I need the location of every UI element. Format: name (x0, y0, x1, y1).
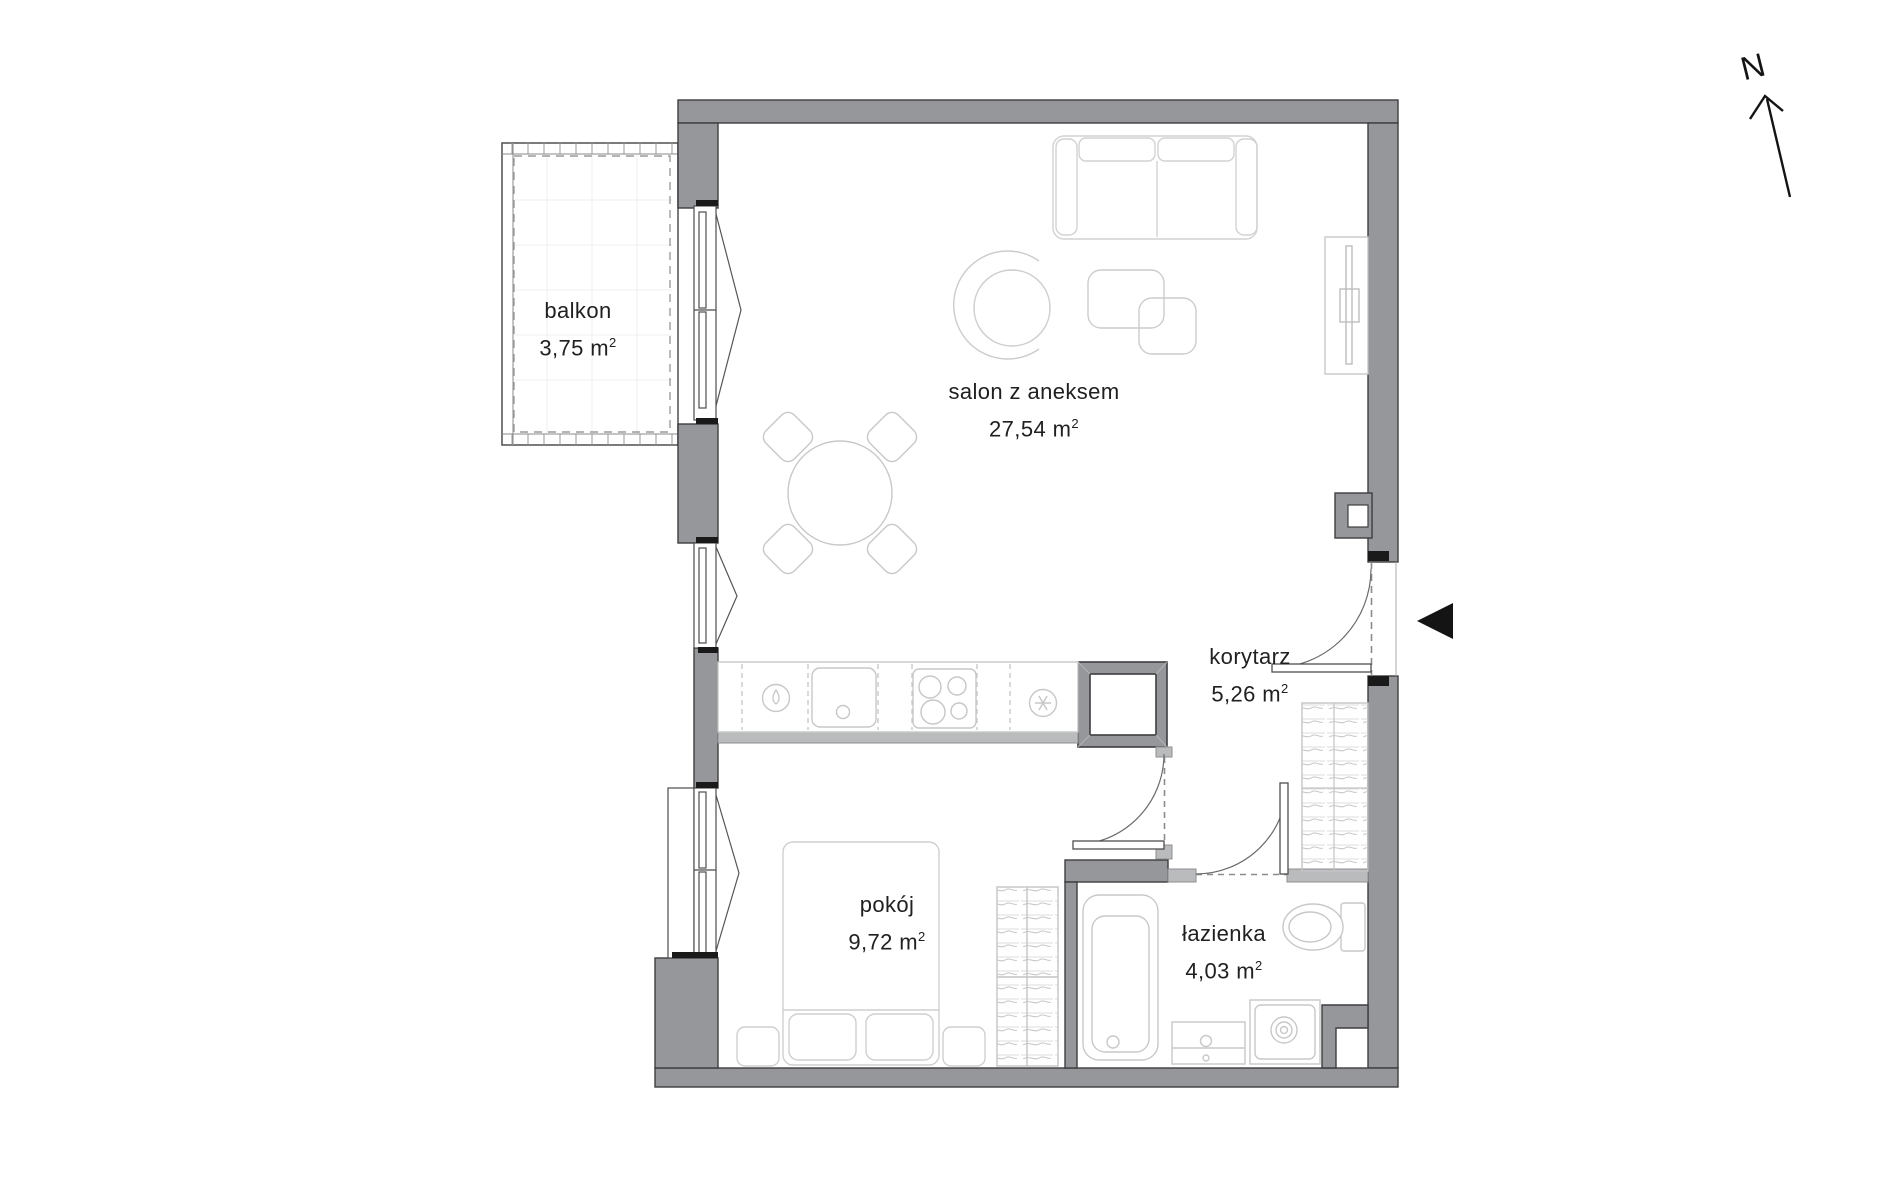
wall-left-c (694, 648, 718, 788)
bedroom-door (1073, 754, 1165, 849)
shaft (1078, 662, 1167, 747)
balcony (502, 143, 678, 445)
wall-right-lower (1368, 676, 1398, 1068)
wall-bathroom-left (1065, 882, 1077, 1068)
armchair (954, 251, 1050, 359)
room-area: 9,72 m2 (848, 921, 925, 958)
windows (668, 200, 741, 958)
entrance-marker-icon (1417, 603, 1453, 639)
room-name: korytarz (1209, 641, 1290, 673)
bathtub (1083, 895, 1158, 1060)
balcony-outline (502, 143, 678, 445)
room-label-balkon: balkon 3,75 m2 (539, 295, 616, 364)
balcony-door-window (694, 206, 741, 420)
wall-left-d (655, 958, 718, 1068)
hallway-wardrobe (1302, 703, 1368, 871)
kitchen-window (694, 543, 737, 648)
bedroom-window (668, 788, 739, 958)
dining-set (760, 409, 921, 578)
floor-plan-page: balkon 3,75 m2 salon z aneksem 27,54 m2 … (0, 0, 1900, 1189)
wall-bottom (655, 1068, 1398, 1087)
floor-plan-drawing (0, 0, 1900, 1189)
room-area: 5,26 m2 (1209, 673, 1290, 710)
coffee-tables (1088, 270, 1196, 354)
bathroom-door (1196, 783, 1288, 875)
nightstand-right (943, 1027, 985, 1066)
room-area: 3,75 m2 (539, 327, 616, 364)
balcony-railing-lines (502, 143, 678, 445)
room-name: salon z aneksem (948, 376, 1119, 408)
kitchen-counter (718, 662, 1078, 732)
sofa (1053, 136, 1257, 239)
room-name: pokój (848, 889, 925, 921)
room-name: balkon (539, 295, 616, 327)
washing-machine (1250, 1000, 1320, 1064)
wall-niche-inner (1348, 505, 1368, 527)
room-label-lazienka: łazienka 4,03 m2 (1182, 918, 1266, 987)
room-label-salon: salon z aneksem 27,54 m2 (948, 376, 1119, 445)
wall-left-b (678, 424, 718, 543)
room-area: 27,54 m2 (948, 408, 1119, 445)
bedroom-wardrobe (997, 887, 1058, 1066)
kitchen (718, 662, 1078, 732)
north-arrow-icon (1750, 96, 1790, 197)
tv-unit (1325, 237, 1368, 374)
room-name: łazienka (1182, 918, 1266, 950)
room-label-korytarz: korytarz 5,26 m2 (1209, 641, 1290, 710)
toilet (1283, 903, 1365, 951)
wall-top (678, 100, 1398, 123)
living-room-furniture (760, 136, 1368, 577)
room-label-pokoj: pokój 9,72 m2 (848, 889, 925, 958)
wall-bathroom-top (1065, 860, 1168, 882)
wall-bath-door-sill-left (1168, 869, 1196, 882)
nightstand-left (737, 1027, 779, 1066)
washbasin (1172, 1022, 1245, 1064)
dining-table (788, 441, 892, 545)
wall-bathroom-l-niche (1322, 1005, 1368, 1068)
room-area: 4,03 m2 (1182, 950, 1266, 987)
wall-left-a (678, 123, 718, 208)
wall-under-counter (718, 732, 1078, 743)
